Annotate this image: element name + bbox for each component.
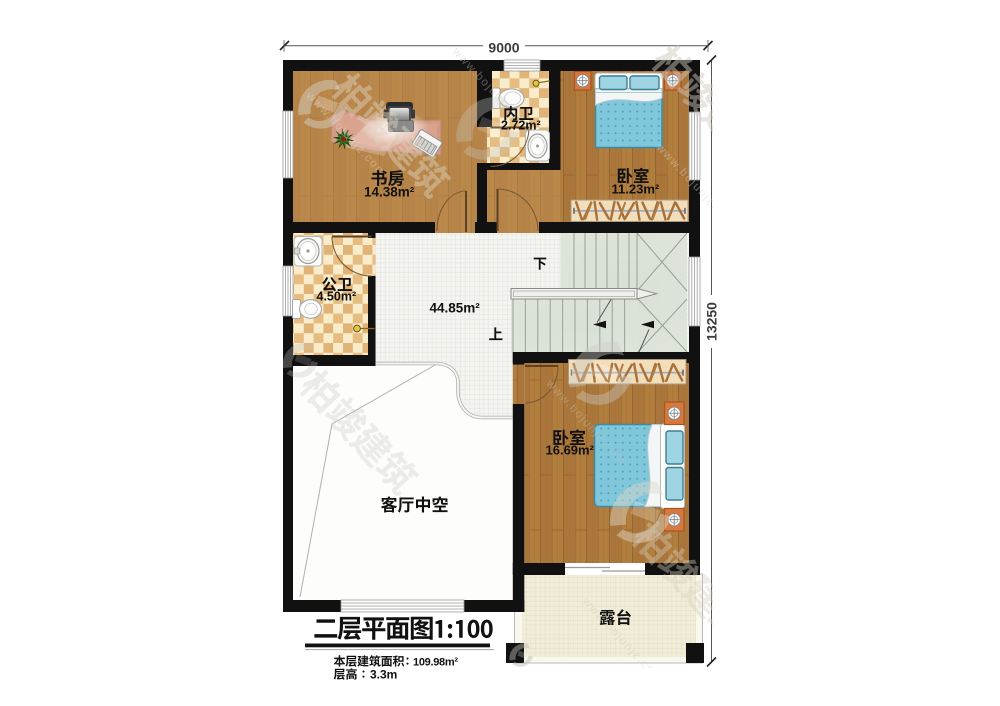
svg-text:4.50m²: 4.50m² [317, 290, 357, 304]
svg-text:13250: 13250 [704, 302, 720, 341]
svg-text:11.23m²: 11.23m² [612, 182, 660, 197]
svg-text:44.85m²: 44.85m² [430, 301, 481, 316]
svg-text:3.3m: 3.3m [370, 668, 397, 682]
svg-text:109.98m²: 109.98m² [413, 657, 458, 669]
svg-text:9000: 9000 [488, 40, 519, 56]
svg-text:2.72m²: 2.72m² [501, 119, 541, 133]
svg-text:14.38m²: 14.38m² [364, 185, 415, 200]
svg-text:16.69m²: 16.69m² [546, 443, 595, 458]
